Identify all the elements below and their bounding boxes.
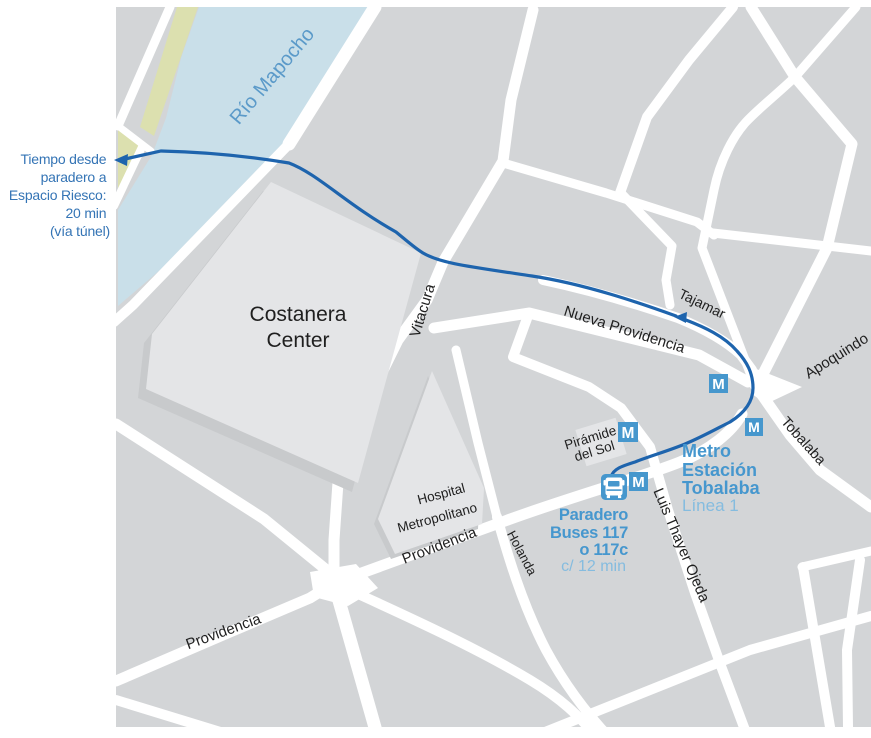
svg-text:Tobalaba: Tobalaba	[682, 478, 761, 498]
svg-text:M: M	[748, 419, 760, 435]
svg-text:Paradero: Paradero	[559, 506, 628, 524]
svg-text:c/ 12 min: c/ 12 min	[561, 558, 626, 575]
svg-text:Metro: Metro	[682, 441, 731, 461]
svg-text:M: M	[712, 376, 725, 393]
svg-text:Costanera: Costanera	[250, 303, 347, 326]
svg-text:o 117c: o 117c	[579, 541, 628, 559]
svg-text:Estación: Estación	[682, 460, 757, 480]
svg-text:Buses 117: Buses 117	[550, 524, 628, 542]
svg-text:Línea 1: Línea 1	[682, 496, 739, 515]
svg-text:M: M	[622, 425, 635, 442]
svg-text:Center: Center	[266, 329, 329, 352]
svg-text:M: M	[632, 474, 645, 491]
